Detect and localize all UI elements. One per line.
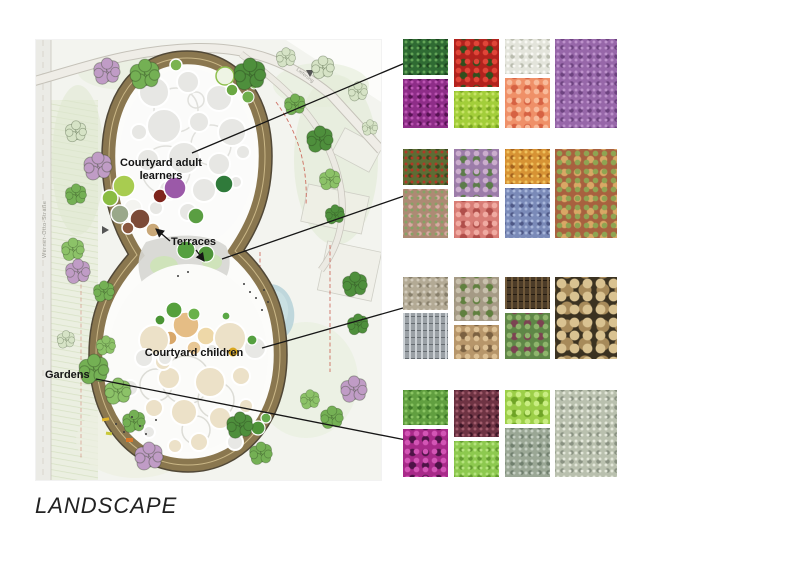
photo-tile bbox=[505, 39, 550, 74]
photo-tile bbox=[403, 189, 448, 238]
photo-tile bbox=[454, 277, 499, 321]
street-name-label: Werner-Otto-Straße bbox=[42, 201, 48, 259]
photo-tile bbox=[454, 149, 499, 197]
site-plan: Werner-Otto-Straße Lieferung Courtyard a… bbox=[36, 40, 381, 480]
photo-tile bbox=[505, 428, 550, 477]
photo-tile bbox=[403, 39, 448, 75]
label-terraces: Terraces bbox=[171, 236, 216, 249]
photo-tile bbox=[505, 78, 550, 128]
site-plan-illustration: Werner-Otto-Straße Lieferung bbox=[36, 40, 381, 480]
collage-adult-courtyard-planting bbox=[403, 39, 617, 128]
photo-tile bbox=[505, 188, 550, 238]
label-gardens: Gardens bbox=[45, 369, 90, 382]
presentation-board: Werner-Otto-Straße Lieferung Courtyard a… bbox=[0, 0, 800, 565]
photo-tile bbox=[403, 79, 448, 128]
photo-tile bbox=[454, 325, 499, 359]
photo-tile bbox=[454, 441, 499, 477]
photo-tile bbox=[454, 91, 499, 128]
photo-tile bbox=[505, 277, 550, 309]
photo-tile bbox=[505, 313, 550, 359]
photo-tile bbox=[454, 39, 499, 87]
photo-tile bbox=[403, 277, 448, 310]
label-courtyard-adult-learners: Courtyard adult learners bbox=[105, 157, 217, 182]
photo-tile bbox=[555, 277, 617, 359]
photo-tile bbox=[505, 390, 550, 424]
collage-children-courtyard-materials bbox=[403, 277, 617, 359]
label-courtyard-children: Courtyard children bbox=[138, 347, 250, 360]
photo-tile bbox=[403, 390, 448, 425]
photo-tile bbox=[555, 149, 617, 238]
photo-tile bbox=[505, 149, 550, 184]
photo-tile bbox=[555, 390, 617, 477]
photo-tile bbox=[403, 429, 448, 477]
photo-tile bbox=[555, 39, 617, 128]
page-title: LANDSCAPE bbox=[35, 493, 177, 519]
photo-tile bbox=[403, 313, 448, 359]
photo-tile bbox=[454, 390, 499, 437]
collage-gardens-planting bbox=[403, 390, 617, 477]
photo-tile bbox=[403, 149, 448, 185]
collage-terraces-planting bbox=[403, 149, 617, 238]
photo-tile bbox=[454, 201, 499, 238]
